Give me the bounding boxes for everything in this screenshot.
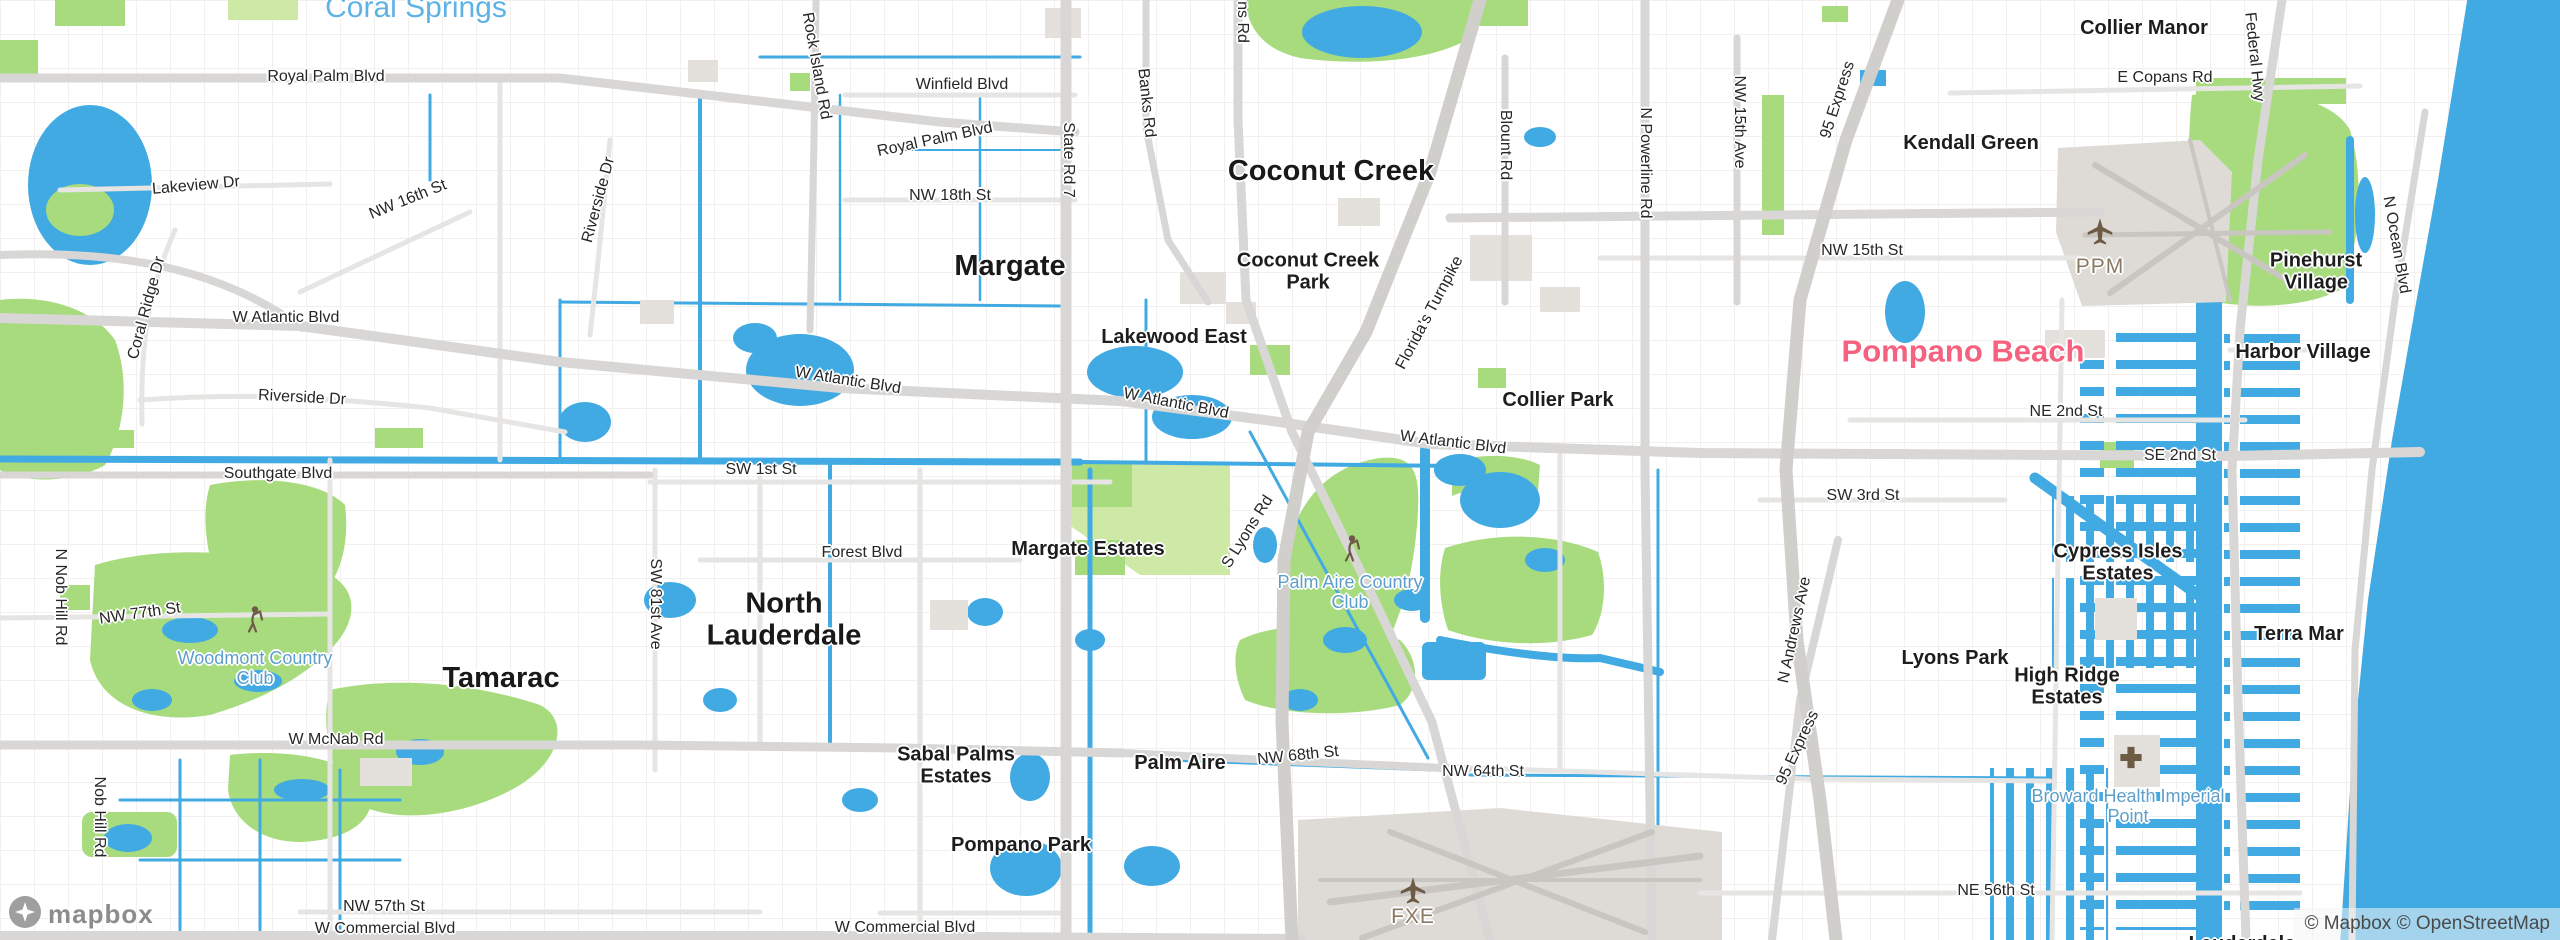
map-canvas[interactable]: Coral SpringsMargateCoconut CreekTamarac… (0, 0, 2560, 940)
fxe-airport-grounds (1298, 808, 1722, 940)
basemap-svg (0, 0, 2560, 940)
mapbox-wordmark: mapbox (48, 899, 154, 930)
map-attribution[interactable]: © Mapbox © OpenStreetMap (2294, 908, 2560, 940)
mapbox-logo-icon (8, 895, 42, 934)
mapbox-watermark[interactable]: mapbox (8, 895, 154, 934)
